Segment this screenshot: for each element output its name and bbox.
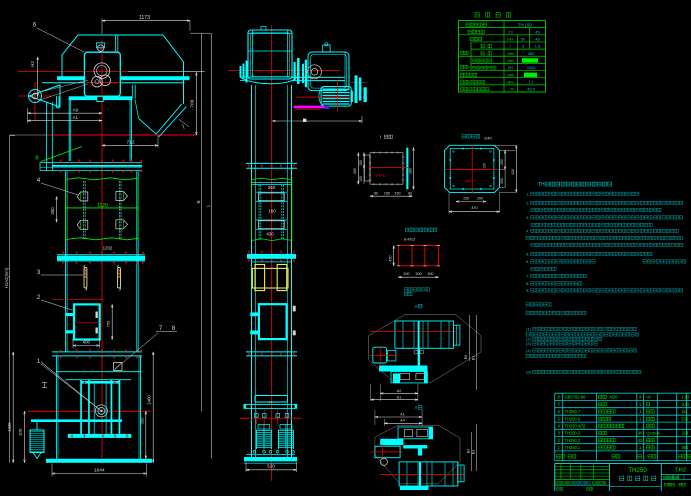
svg-text:1120: 1120: [97, 203, 108, 209]
svg-text:450: 450: [388, 255, 392, 261]
svg-text:450: 450: [528, 51, 535, 56]
svg-text:GB5782-86: GB5782-86: [565, 395, 587, 400]
svg-text:450: 450: [50, 207, 55, 215]
svg-text:470: 470: [471, 206, 477, 210]
svg-text:360: 360: [353, 168, 357, 174]
svg-text:TH250.4(5): TH250.4(5): [565, 424, 586, 429]
svg-text:I: I: [380, 135, 381, 140]
svg-text:2.: 2.: [526, 201, 529, 206]
svg-text:4.: 4.: [526, 229, 529, 234]
svg-text:150: 150: [463, 197, 469, 201]
svg-text:35: 35: [647, 396, 651, 400]
svg-text:H1A2(mm): H1A2(mm): [4, 267, 9, 288]
svg-text:260: 260: [268, 185, 276, 190]
svg-text:KN: KN: [508, 66, 513, 70]
svg-text:M/S: M/S: [507, 81, 514, 85]
svg-text:mm: mm: [507, 38, 513, 42]
svg-text:B: B: [196, 200, 201, 203]
svg-text:A1: A1: [397, 395, 401, 399]
svg-text:B1: B1: [472, 450, 476, 454]
svg-text:TH: TH: [538, 182, 545, 188]
svg-text:I I: I I: [269, 401, 272, 405]
svg-text:r/m: r/m: [510, 88, 515, 92]
svg-text:21: 21: [682, 409, 687, 414]
svg-text:50: 50: [521, 37, 526, 42]
svg-text:400: 400: [83, 340, 91, 345]
svg-text:A9: A9: [73, 108, 79, 113]
svg-text:TH250.6: TH250.6: [565, 417, 581, 422]
svg-text:L: L: [206, 204, 211, 207]
svg-text:1.1: 1.1: [528, 80, 534, 85]
svg-text:MM: MM: [508, 52, 514, 56]
svg-text:TH 150: TH 150: [518, 22, 532, 27]
svg-text:A4: A4: [400, 419, 404, 423]
svg-text:9.06: 9.06: [682, 402, 691, 407]
svg-text:155: 155: [359, 160, 363, 166]
svg-text:535: 535: [682, 417, 690, 422]
svg-text:712: 712: [126, 139, 134, 145]
svg-text:≥320: ≥320: [527, 65, 537, 70]
svg-text:H2: H2: [30, 61, 35, 67]
svg-text:260: 260: [408, 168, 412, 174]
svg-text:160: 160: [268, 209, 276, 214]
svg-text:1.: 1.: [526, 191, 529, 196]
svg-text:B1: B1: [472, 356, 476, 360]
svg-text:430: 430: [266, 232, 274, 237]
svg-text:90: 90: [374, 191, 378, 195]
svg-text:1044: 1044: [94, 468, 105, 474]
svg-text:8.: 8.: [526, 281, 529, 286]
svg-text:200: 200: [403, 272, 409, 276]
svg-text:(1): (1): [526, 327, 532, 332]
svg-text:TH250.7: TH250.7: [565, 409, 581, 414]
svg-text:A2: A2: [397, 389, 401, 393]
svg-text:M20: M20: [610, 395, 619, 400]
svg-text:155: 155: [359, 176, 363, 182]
svg-text:1.08: 1.08: [682, 395, 691, 400]
svg-text:709: 709: [189, 99, 195, 107]
svg-text:45: 45: [638, 438, 643, 443]
svg-text:1173: 1173: [139, 15, 150, 21]
svg-text:D40: D40: [484, 136, 492, 141]
svg-text:9.: 9.: [526, 288, 529, 293]
svg-text:150: 150: [483, 163, 487, 169]
svg-text:570: 570: [18, 428, 23, 436]
svg-text:6.: 6.: [526, 259, 529, 264]
svg-text:150: 150: [394, 191, 400, 195]
svg-text:96: 96: [638, 431, 643, 436]
svg-text:TH250.2: TH250.2: [565, 438, 581, 443]
svg-text:1400: 1400: [147, 395, 152, 405]
svg-text:1202: 1202: [103, 245, 113, 250]
svg-text:A1: A1: [400, 412, 404, 416]
svg-text:8-M12: 8-M12: [404, 236, 416, 241]
svg-text:600: 600: [465, 179, 472, 184]
svg-text:B4: B4: [466, 449, 470, 453]
svg-text:5.: 5.: [526, 252, 529, 257]
svg-text:Q235-A: Q235-A: [647, 432, 661, 436]
svg-text:200: 200: [477, 197, 483, 201]
svg-text:48.5: 48.5: [527, 87, 536, 92]
svg-text:214: 214: [682, 431, 690, 436]
svg-text:750: 750: [106, 320, 111, 327]
svg-text:48: 48: [535, 37, 540, 42]
svg-text:TH2: TH2: [675, 468, 686, 474]
svg-text:23: 23: [508, 29, 513, 34]
svg-text:420: 420: [511, 169, 515, 175]
svg-text:B5: B5: [464, 355, 468, 359]
svg-text:3.: 3.: [526, 215, 529, 220]
svg-text:TH250: TH250: [628, 467, 647, 474]
svg-text:300: 300: [415, 272, 421, 276]
svg-text:200: 200: [500, 178, 504, 184]
svg-text:8-M12: 8-M12: [375, 173, 387, 178]
svg-text:45: 45: [535, 29, 540, 34]
svg-text:90: 90: [408, 191, 412, 195]
svg-text:MM: MM: [508, 59, 514, 63]
svg-text:(5): (5): [526, 370, 532, 375]
svg-text:(3): (3): [526, 341, 532, 346]
svg-text:880: 880: [682, 445, 690, 450]
svg-text:TH250.1: TH250.1: [565, 445, 581, 450]
svg-text:150: 150: [384, 191, 390, 195]
svg-text:1.8: 1.8: [535, 44, 541, 49]
svg-text:TH250.3: TH250.3: [565, 431, 581, 436]
svg-text:300: 300: [427, 272, 433, 276]
svg-text:A1: A1: [73, 115, 79, 120]
svg-text:350: 350: [139, 417, 144, 425]
svg-text:7.: 7.: [526, 274, 529, 279]
svg-text:200: 200: [500, 159, 504, 165]
svg-text:520: 520: [267, 464, 275, 469]
svg-text:(4): (4): [526, 348, 532, 353]
svg-text:MM: MM: [508, 73, 514, 77]
svg-text:l: l: [510, 44, 511, 49]
